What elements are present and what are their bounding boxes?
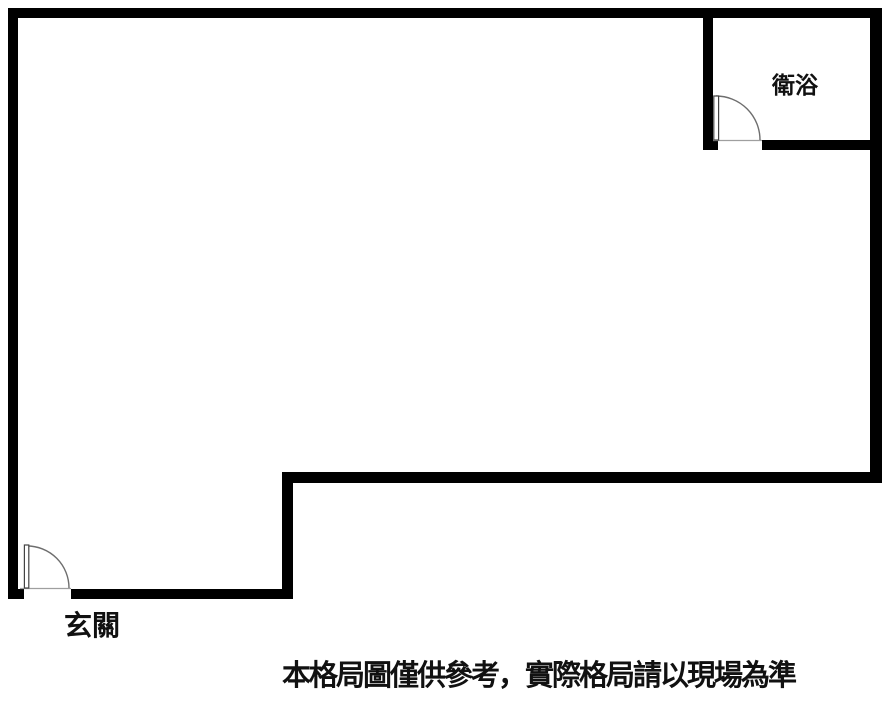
wall-left: [8, 8, 18, 599]
entrance-label: 玄關: [58, 612, 126, 640]
bathroom-door-icon: [713, 96, 762, 141]
disclaimer-text: 本格局圖僅供參考，實際格局請以現場為準: [282, 662, 795, 691]
entrance-door-arc: [27, 546, 69, 588]
wall-right: [870, 8, 882, 483]
wall-bathroom-door-stub: [703, 140, 718, 150]
bathroom-label: 衛浴: [763, 74, 827, 97]
bathroom-door-arc: [716, 96, 760, 140]
wall-bathroom-divider: [703, 8, 713, 150]
wall-entrance-door-stub: [8, 589, 24, 599]
wall-bathroom-bottom: [762, 140, 882, 150]
wall-top: [8, 8, 882, 18]
floor-plan: 衛浴 玄關 本格局圖僅供參考，實際格局請以現場為準: [0, 0, 888, 704]
wall-step-vertical: [282, 472, 293, 599]
wall-step-horizontal: [282, 472, 882, 483]
wall-bottom: [71, 589, 293, 599]
entrance-door-icon: [20, 545, 71, 589]
entrance-door-leaf: [24, 545, 28, 588]
bathroom-door-leaf: [714, 96, 719, 140]
